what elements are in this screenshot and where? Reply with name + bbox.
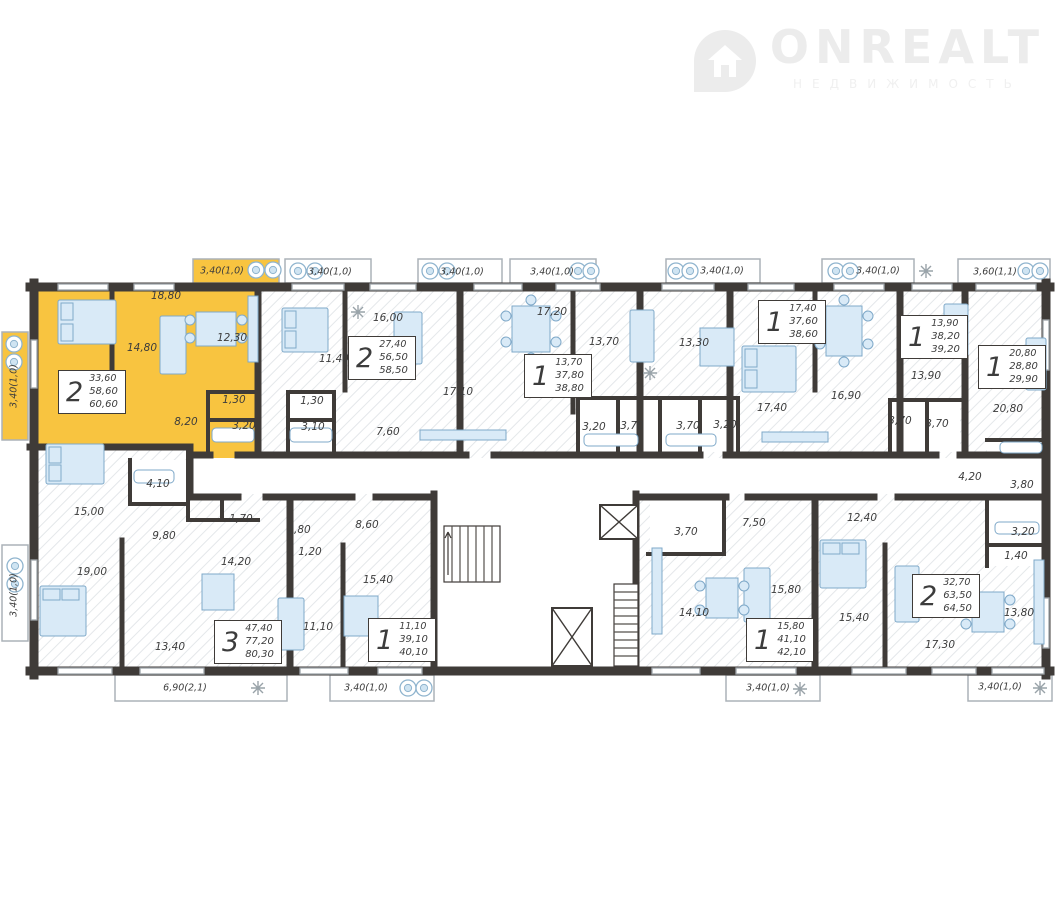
- area-value: 37,60: [789, 315, 818, 328]
- area-value: 47,40: [245, 623, 274, 635]
- area-value: 63,50: [943, 589, 972, 602]
- room-count: 2: [356, 345, 373, 372]
- area-value: 42,10: [777, 646, 806, 659]
- area-value: 11,10: [399, 621, 428, 633]
- area-value: 56,50: [379, 351, 408, 364]
- apartment-label[interactable]: 232,7063,5064,50: [912, 574, 980, 618]
- area-value: 64,50: [943, 602, 972, 615]
- apartment-label[interactable]: 113,9038,2039,20: [900, 315, 968, 359]
- area-value: 39,20: [931, 343, 960, 356]
- apartment-areas: 17,4037,6038,60: [789, 303, 818, 341]
- apartment-areas: 20,8028,8029,90: [1009, 348, 1038, 386]
- area-value: 13,90: [931, 318, 960, 330]
- area-value: 15,80: [777, 621, 806, 633]
- area-value: 40,10: [399, 646, 428, 659]
- apartment-areas: 47,4077,2080,30: [245, 623, 274, 661]
- apartment-areas: 32,7063,5064,50: [943, 577, 972, 615]
- area-value: 33,60: [89, 373, 118, 385]
- apartment-areas: 11,1039,1040,10: [399, 621, 428, 659]
- room-count: 1: [754, 627, 771, 654]
- area-value: 38,20: [931, 330, 960, 343]
- apartment-label[interactable]: 117,4037,6038,60: [758, 300, 826, 344]
- house-pin-icon: [694, 30, 756, 92]
- apartment-areas: 27,4056,5058,50: [379, 339, 408, 377]
- apartment-areas: 15,8041,1042,10: [777, 621, 806, 659]
- floor-plan: [0, 0, 1061, 910]
- area-value: 38,80: [555, 382, 584, 395]
- apartment-label[interactable]: 111,1039,1040,10: [368, 618, 436, 662]
- apartment-label[interactable]: 120,8028,8029,90: [978, 345, 1046, 389]
- room-count: 1: [532, 363, 549, 390]
- apartment-label[interactable]: 227,4056,5058,50: [348, 336, 416, 380]
- room-count: 2: [920, 583, 937, 610]
- room-count: 1: [986, 354, 1003, 381]
- area-value: 28,80: [1009, 360, 1038, 373]
- apartment-areas: 13,9038,2039,20: [931, 318, 960, 356]
- area-value: 39,10: [399, 633, 428, 646]
- room-count: 1: [766, 309, 783, 336]
- apartment-label[interactable]: 347,4077,2080,30: [214, 620, 282, 664]
- apartment-areas: 33,6058,6060,60: [89, 373, 118, 411]
- room-count: 2: [66, 379, 83, 406]
- area-value: 38,60: [789, 328, 818, 341]
- area-value: 77,20: [245, 635, 274, 648]
- logo-title: ONREALT: [770, 24, 1045, 70]
- room-count: 1: [908, 324, 925, 351]
- logo-subtitle: НЕДВИЖИМОСТЬ: [793, 77, 1022, 91]
- apartment-label-highlighted[interactable]: 233,6058,6060,60: [58, 370, 126, 414]
- apartment-label[interactable]: 115,8041,1042,10: [746, 618, 814, 662]
- area-value: 32,70: [943, 577, 972, 589]
- room-count: 3: [222, 629, 239, 656]
- area-value: 37,80: [555, 369, 584, 382]
- area-value: 80,30: [245, 648, 274, 661]
- area-value: 29,90: [1009, 373, 1038, 386]
- area-value: 27,40: [379, 339, 408, 351]
- apartment-label[interactable]: 113,7037,8038,80: [524, 354, 592, 398]
- area-value: 58,50: [379, 364, 408, 377]
- apartment-areas: 13,7037,8038,80: [555, 357, 584, 395]
- onrealt-logo: ONREALT НЕДВИЖИМОСТЬ: [694, 24, 1045, 92]
- area-value: 41,10: [777, 633, 806, 646]
- room-count: 1: [376, 627, 393, 654]
- area-value: 20,80: [1009, 348, 1038, 360]
- area-value: 60,60: [89, 398, 118, 411]
- area-value: 58,60: [89, 385, 118, 398]
- area-value: 13,70: [555, 357, 584, 369]
- area-value: 17,40: [789, 303, 818, 315]
